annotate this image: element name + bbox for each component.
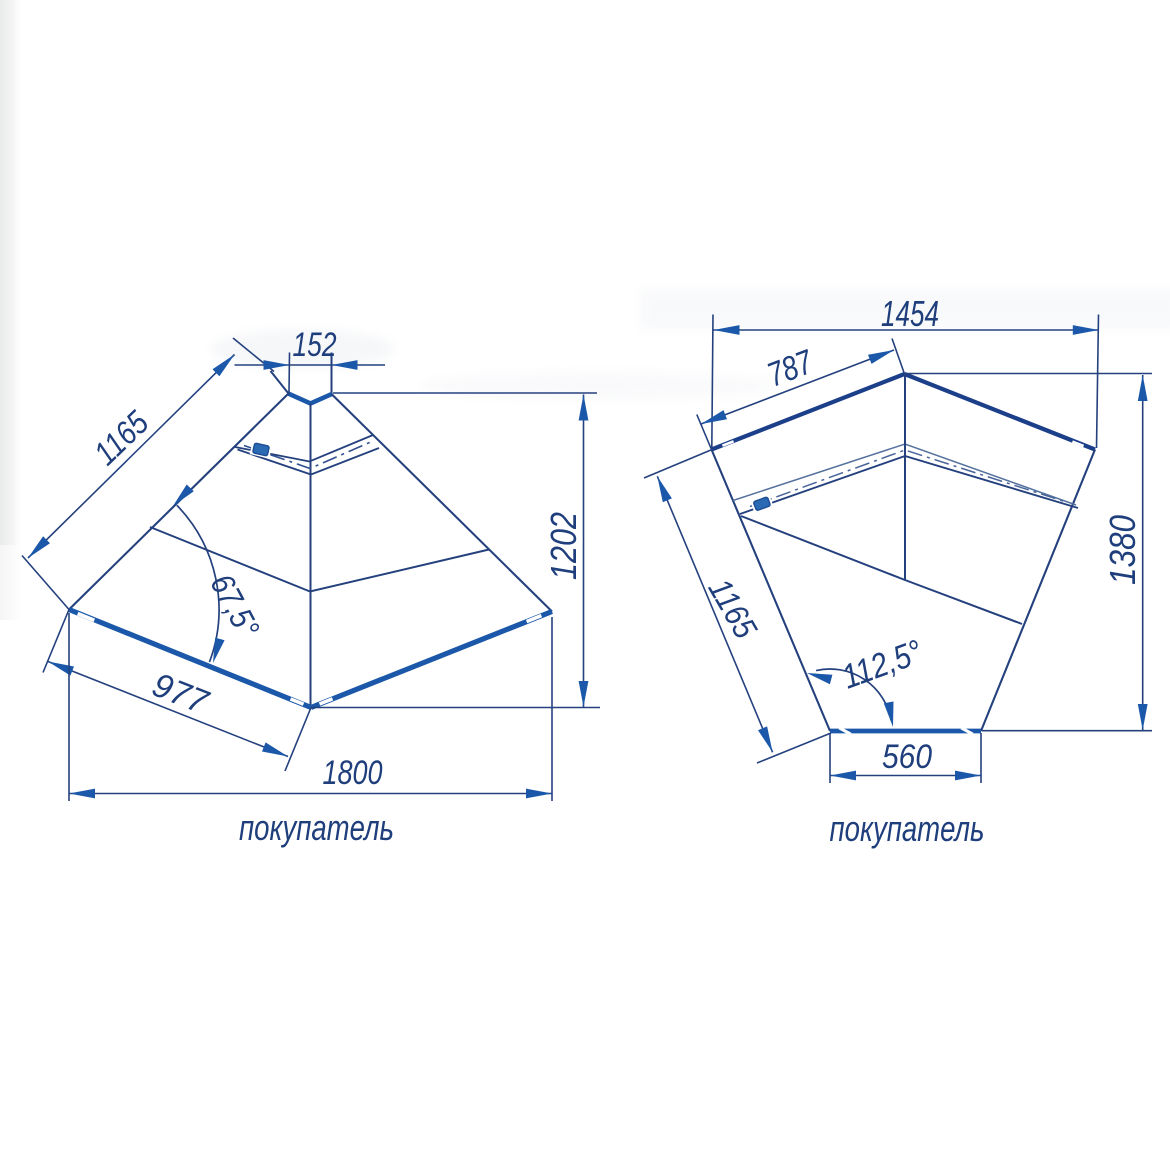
svg-text:покупатель: покупатель bbox=[830, 808, 985, 849]
svg-text:1454: 1454 bbox=[881, 293, 939, 334]
svg-text:покупатель: покупатель bbox=[239, 807, 394, 848]
svg-text:560: 560 bbox=[882, 738, 932, 776]
svg-text:152: 152 bbox=[293, 326, 337, 364]
svg-text:1202: 1202 bbox=[543, 512, 584, 580]
svg-text:1800: 1800 bbox=[323, 754, 383, 792]
svg-text:1380: 1380 bbox=[1102, 515, 1143, 585]
